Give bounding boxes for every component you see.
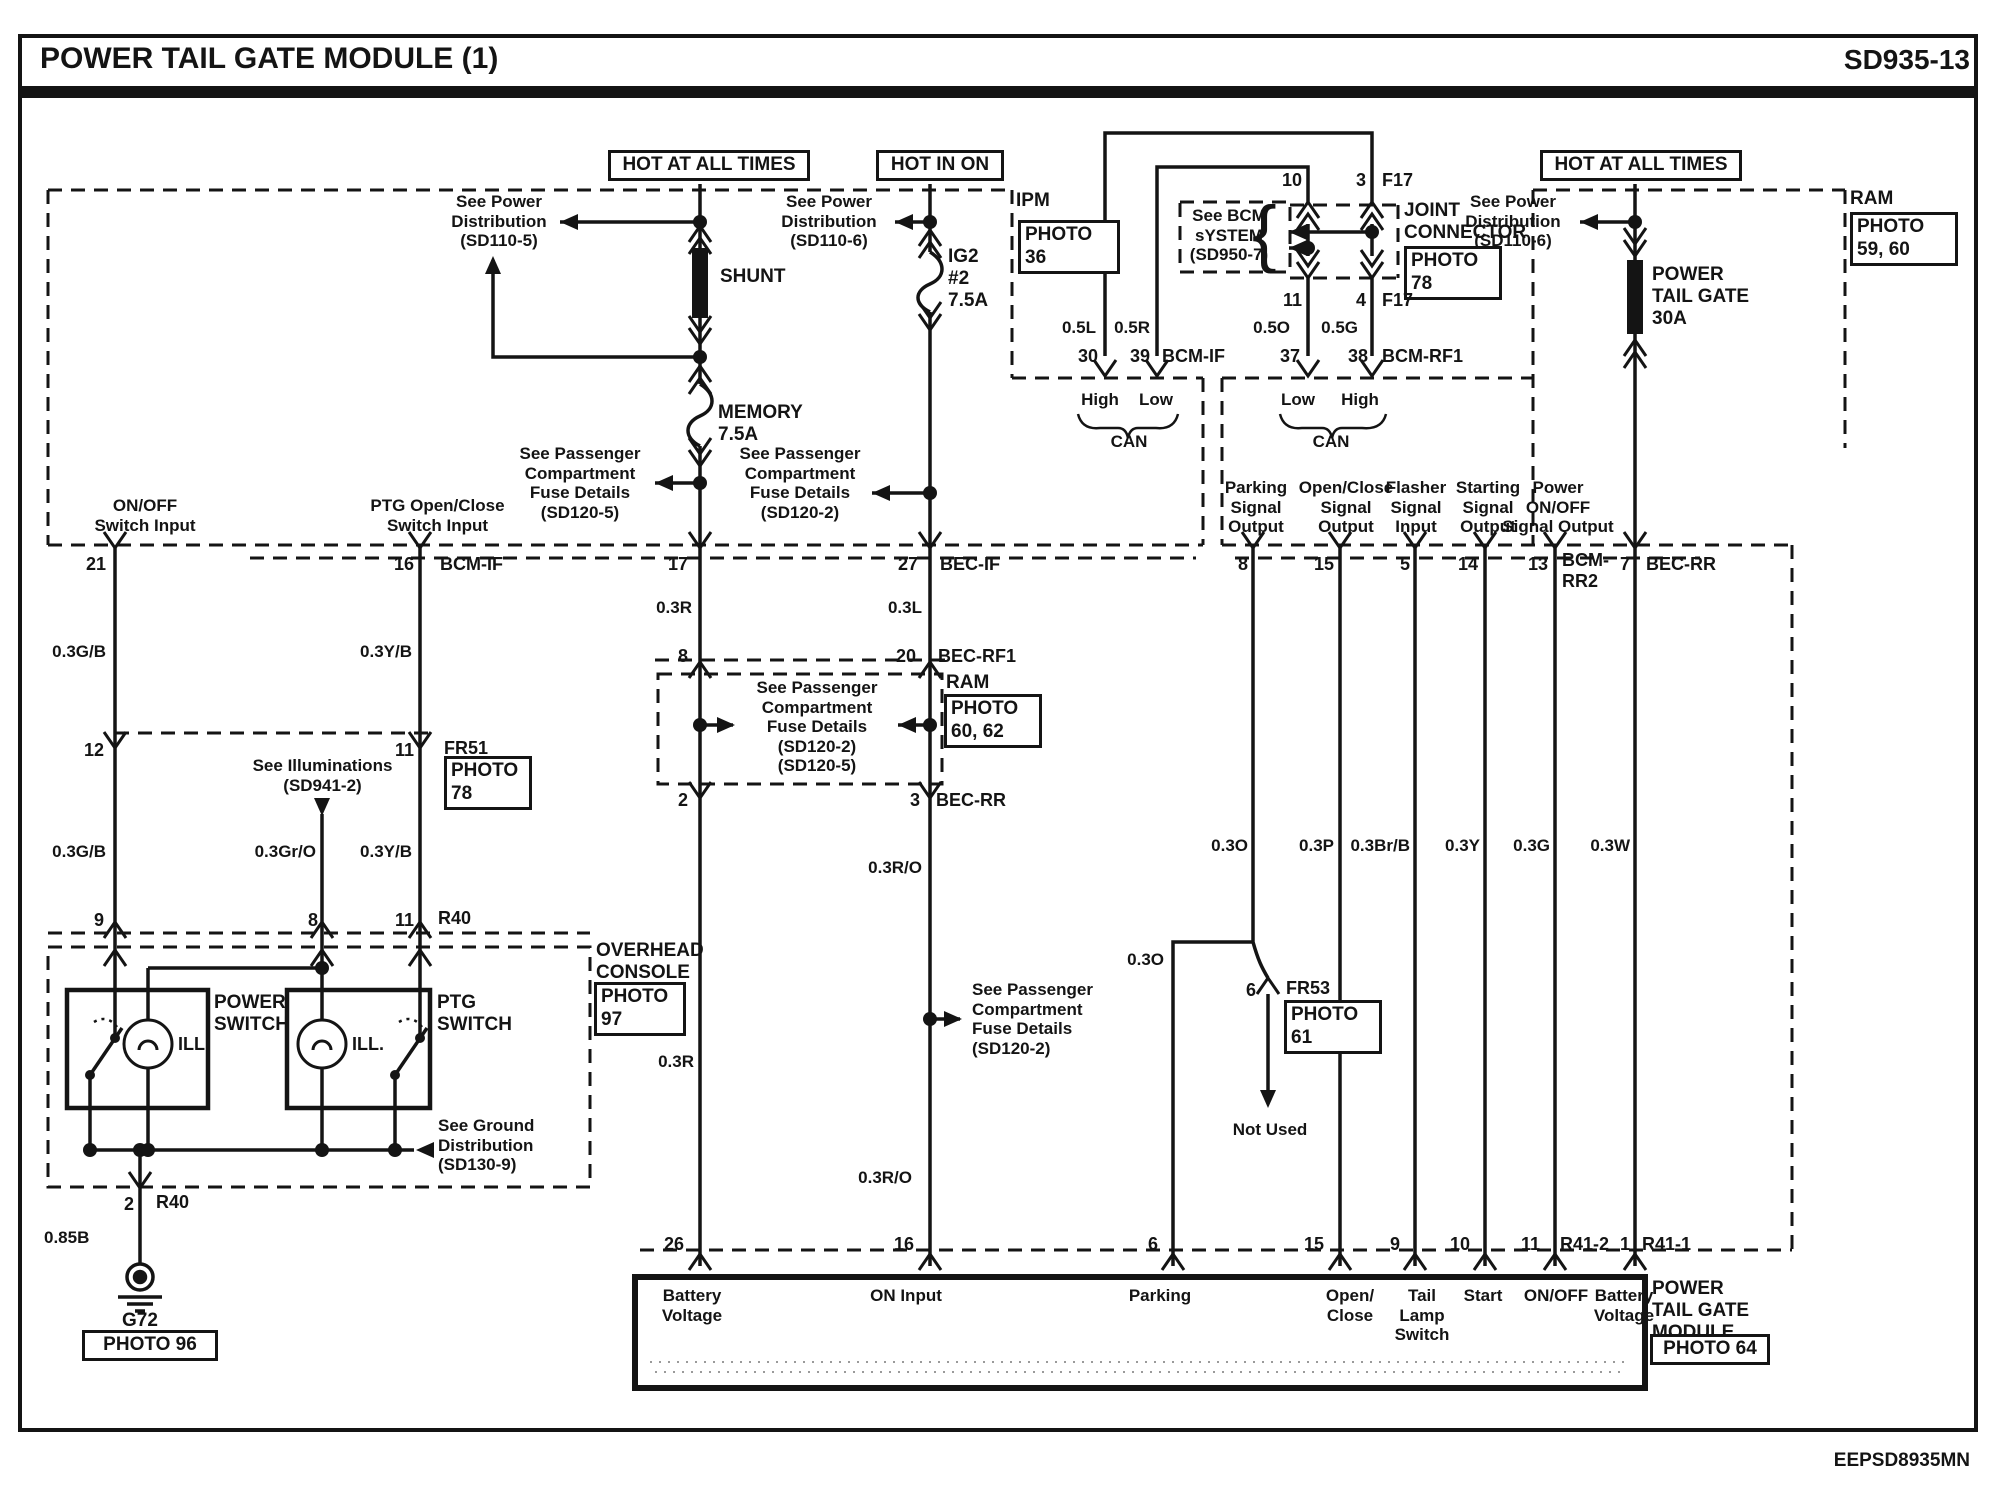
w-03o1-label: 0.3O xyxy=(1196,836,1248,856)
w-03r2-label: 0.3R xyxy=(642,1052,694,1072)
p39-label: 39 xyxy=(1116,346,1150,367)
ph97-box: PHOTO 97 xyxy=(594,982,686,1036)
n-notused-label: Not Used xyxy=(1218,1120,1322,1140)
reference-arrow-icon xyxy=(560,214,578,230)
w-03g-label: 0.3G xyxy=(1498,836,1550,856)
junction-dot-icon xyxy=(923,215,937,229)
overhead-label: OVERHEAD CONSOLE xyxy=(596,940,726,984)
ig2-fuse-icon xyxy=(918,252,942,312)
p12-label: 12 xyxy=(72,740,104,761)
w-03ro1-label: 0.3R/O xyxy=(856,858,922,878)
n-sd120-2m-label: See Passenger Compartment Fuse Details (… xyxy=(730,444,870,522)
ph61-box: PHOTO 61 xyxy=(1284,1000,1382,1054)
ram-r-label: RAM xyxy=(1850,188,1910,210)
ig2-label: IG2 #2 7.5A xyxy=(948,246,1008,312)
component-symbols xyxy=(67,248,1645,1388)
p38-label: 38 xyxy=(1334,346,1368,367)
w-05l-label: 0.5L xyxy=(1048,318,1096,338)
pwr-sw-label: POWER SWITCH xyxy=(214,992,304,1036)
can1-high-label: High xyxy=(1076,390,1124,410)
ram-m-label: RAM xyxy=(946,672,996,694)
title-label: POWER TAIL GATE MODULE (1) xyxy=(40,42,740,77)
p4-label: 4 xyxy=(1340,290,1366,311)
m-oc-label: Open/ Close xyxy=(1312,1286,1388,1325)
p11d-label: 11 xyxy=(1502,1234,1540,1255)
p3f-label: 3 xyxy=(898,790,920,811)
ptg-sw-label: PTG SWITCH xyxy=(437,992,527,1036)
bcm-rf1-label: BCM-RF1 xyxy=(1382,346,1474,367)
can1-label: CAN xyxy=(1104,432,1154,452)
w-03yb2-label: 0.3Y/B xyxy=(346,842,412,862)
junction-dot-icon xyxy=(1628,215,1642,229)
p27-label: 27 xyxy=(884,554,918,575)
illumination-lamp-icon xyxy=(298,1020,346,1068)
ill2-label: ILL. xyxy=(352,1034,398,1055)
w-05r-label: 0.5R xyxy=(1102,318,1150,338)
m-batt1-label: Battery Voltage xyxy=(650,1286,734,1325)
can1-low-label: Low xyxy=(1134,390,1178,410)
w-03gb2-label: 0.3G/B xyxy=(40,842,106,862)
reference-arrow-icon xyxy=(1260,1090,1276,1108)
jc-label-label: JOINT CONNECTOR xyxy=(1404,200,1544,244)
reference-arrow-icon xyxy=(898,717,916,733)
hot-mid-box: HOT IN ON xyxy=(876,150,1004,181)
connector-chevron-icon xyxy=(1297,360,1319,376)
ground-icon xyxy=(118,1264,162,1311)
ph36-box: PHOTO 36 xyxy=(1018,220,1120,274)
junction-dot-icon xyxy=(693,350,707,364)
memory-label: MEMORY 7.5A xyxy=(718,402,818,446)
p1b-label: 1 xyxy=(1606,1234,1630,1255)
p15s-label: 15 xyxy=(1302,554,1334,575)
p10-label: 10 xyxy=(1268,170,1302,191)
m-on-label: ON Input xyxy=(858,1286,954,1306)
illumination-lamp-icon xyxy=(124,1020,172,1068)
brace-label: { xyxy=(1252,196,1282,270)
reference-arrow-icon xyxy=(416,1142,434,1158)
w-03ro2-label: 0.3R/O xyxy=(846,1168,912,1188)
switch-contact-icon xyxy=(85,1070,95,1080)
onoff-in-label: ON/OFF Switch Input xyxy=(80,496,210,535)
p15b-label: 15 xyxy=(1290,1234,1324,1255)
hot-right-box: HOT AT ALL TIMES xyxy=(1540,150,1742,181)
m-start-label: Start xyxy=(1452,1286,1514,1306)
p5s-label: 5 xyxy=(1392,554,1410,575)
r40b-label: R40 xyxy=(156,1192,208,1213)
p6b-label: 6 xyxy=(1124,1234,1158,1255)
junction-dot-icon xyxy=(315,1143,329,1157)
w-03yb1-label: 0.3Y/B xyxy=(350,642,412,662)
junction-dot-icon xyxy=(388,1143,402,1157)
p16-label: 16 xyxy=(382,554,414,575)
can2-high-label: High xyxy=(1336,390,1384,410)
reference-arrow-icon xyxy=(655,475,673,491)
memory-fuse-icon xyxy=(688,384,712,446)
junction-dot-icon xyxy=(923,718,937,732)
p13s-label: 13 xyxy=(1516,554,1548,575)
reference-arrow-icon xyxy=(314,798,330,816)
wiring-diagram-page: POWER TAIL GATE MODULE (1)SD935-13EEPSD8… xyxy=(0,0,2000,1504)
p9-label: 9 xyxy=(76,910,104,931)
p2r-label: 2 xyxy=(112,1194,134,1215)
fr53-label: FR53 xyxy=(1286,978,1346,999)
ph78b-box: PHOTO 78 xyxy=(444,756,532,810)
p8f-label: 8 xyxy=(662,646,688,667)
w-03o2-label: 0.3O xyxy=(1112,950,1164,970)
n-sd120-5l-label: See Passenger Compartment Fuse Details (… xyxy=(510,444,650,522)
r41-1-label: R41-1 xyxy=(1642,1234,1706,1255)
r40a-label: R40 xyxy=(438,908,494,929)
p16b-label: 16 xyxy=(880,1234,914,1255)
p8s-label: 8 xyxy=(1226,554,1248,575)
reference-arrow-icon xyxy=(485,256,501,274)
p11c-label: 11 xyxy=(1268,290,1302,311)
n-sd110-6m-label: See Power Distribution (SD110-6) xyxy=(768,192,890,251)
w-03y-label: 0.3Y xyxy=(1428,836,1480,856)
switch-contact-icon xyxy=(110,1033,120,1043)
ptg-in-label: PTG Open/Close Switch Input xyxy=(355,496,520,535)
code-label: SD935-13 xyxy=(1810,44,1970,76)
n-illum-label: See Illuminations (SD941-2) xyxy=(250,756,395,795)
can2-low-label: Low xyxy=(1276,390,1320,410)
sig-pw-label: Power ON/OFF Signal Output xyxy=(1500,478,1616,537)
w-03l-label: 0.3L xyxy=(866,598,922,618)
footer-label: EEPSD8935MN xyxy=(1820,1450,1970,1472)
junction-dot-icon xyxy=(693,476,707,490)
ph64-box: PHOTO 64 xyxy=(1650,1334,1770,1365)
reference-arrow-icon xyxy=(895,214,913,230)
bec-if-label: BEC-IF xyxy=(940,554,1020,575)
reference-arrow-icon xyxy=(944,1011,962,1027)
switch-contact-icon xyxy=(390,1070,400,1080)
bcm-if1-label: BCM-IF xyxy=(1162,346,1242,367)
n-fusebox-label: See Passenger Compartment Fuse Details (… xyxy=(742,678,892,776)
shunt-label: SHUNT xyxy=(720,266,810,288)
n-ground-label: See Ground Distribution (SD130-9) xyxy=(438,1116,568,1175)
f17a-label: F17 xyxy=(1382,170,1432,191)
p3-label: 3 xyxy=(1340,170,1366,191)
w-085b-label: 0.85B xyxy=(44,1228,106,1248)
p37-label: 37 xyxy=(1266,346,1300,367)
p20-label: 20 xyxy=(878,646,916,667)
p21-label: 21 xyxy=(74,554,106,575)
p9b-label: 9 xyxy=(1368,1234,1400,1255)
junction-dot-icon xyxy=(141,1143,155,1157)
sig-parking-label: Parking Signal Output xyxy=(1212,478,1300,537)
switch-contact-icon xyxy=(415,1033,425,1043)
bec-rr2-label: BEC-RR xyxy=(1646,554,1730,575)
w-03w-label: 0.3W xyxy=(1574,836,1630,856)
p30-label: 30 xyxy=(1064,346,1098,367)
bec-rf1b-label: BEC-RF1 xyxy=(938,646,1030,667)
w-03brb-label: 0.3Br/B xyxy=(1340,836,1410,856)
m-parking-label: Parking xyxy=(1114,1286,1206,1306)
power-tailgate-fuse-bar-icon xyxy=(1627,260,1643,334)
w-03r1-label: 0.3R xyxy=(636,598,692,618)
n-sd110-5-label: See Power Distribution (SD110-5) xyxy=(438,192,560,251)
can2-label: CAN xyxy=(1306,432,1356,452)
reference-arrow-icon xyxy=(717,717,735,733)
bec-rr1-label: BEC-RR xyxy=(936,790,1020,811)
shunt-fuse-bar-icon xyxy=(692,248,708,318)
junction-dot-icon xyxy=(923,486,937,500)
p10b-label: 10 xyxy=(1432,1234,1470,1255)
p6f-label: 6 xyxy=(1234,980,1256,1001)
ptg30a-label: POWER TAIL GATE 30A xyxy=(1652,264,1782,330)
p26-label: 26 xyxy=(650,1234,684,1255)
p8c-label: 8 xyxy=(290,910,318,931)
n-sd120-2low-label: See Passenger Compartment Fuse Details (… xyxy=(972,980,1112,1058)
p11b-label: 11 xyxy=(384,910,414,931)
connector-chevron-icon xyxy=(919,302,941,318)
reference-arrow-icon xyxy=(1580,214,1598,230)
m-tls-label: Tail Lamp Switch xyxy=(1386,1286,1458,1345)
p2f-label: 2 xyxy=(666,790,688,811)
junction-dot-icon xyxy=(693,718,707,732)
n-ipm-label: IPM xyxy=(1016,190,1076,212)
w-03gb1-label: 0.3G/B xyxy=(40,642,106,662)
junction-dot-icon xyxy=(693,215,707,229)
ill1-label: ILL. xyxy=(178,1034,224,1055)
bcm-if2-label: BCM-IF xyxy=(440,554,520,575)
junction-dot-icon xyxy=(315,961,329,975)
w-03gro-label: 0.3Gr/O xyxy=(240,842,316,862)
w-05o-label: 0.5O xyxy=(1238,318,1290,338)
ph96-box: PHOTO 96 xyxy=(82,1330,218,1361)
ph59-box: PHOTO 59, 60 xyxy=(1850,212,1958,266)
p17-label: 17 xyxy=(654,554,688,575)
p14s-label: 14 xyxy=(1446,554,1478,575)
ph62-box: PHOTO 60, 62 xyxy=(944,694,1042,748)
hot-left-box: HOT AT ALL TIMES xyxy=(608,150,810,181)
g72-label: G72 xyxy=(116,1310,164,1332)
p7s-label: 7 xyxy=(1612,554,1630,575)
w-03p-label: 0.3P xyxy=(1284,836,1334,856)
w-05g-label: 0.5G xyxy=(1306,318,1358,338)
connector-chevron-icon xyxy=(1257,978,1279,994)
reference-arrow-icon xyxy=(872,485,890,501)
junction-dot-icon xyxy=(83,1143,97,1157)
junction-dot-icon xyxy=(1365,225,1379,239)
f17b-label: F17 xyxy=(1382,290,1432,311)
junction-dot-icon xyxy=(923,1012,937,1026)
